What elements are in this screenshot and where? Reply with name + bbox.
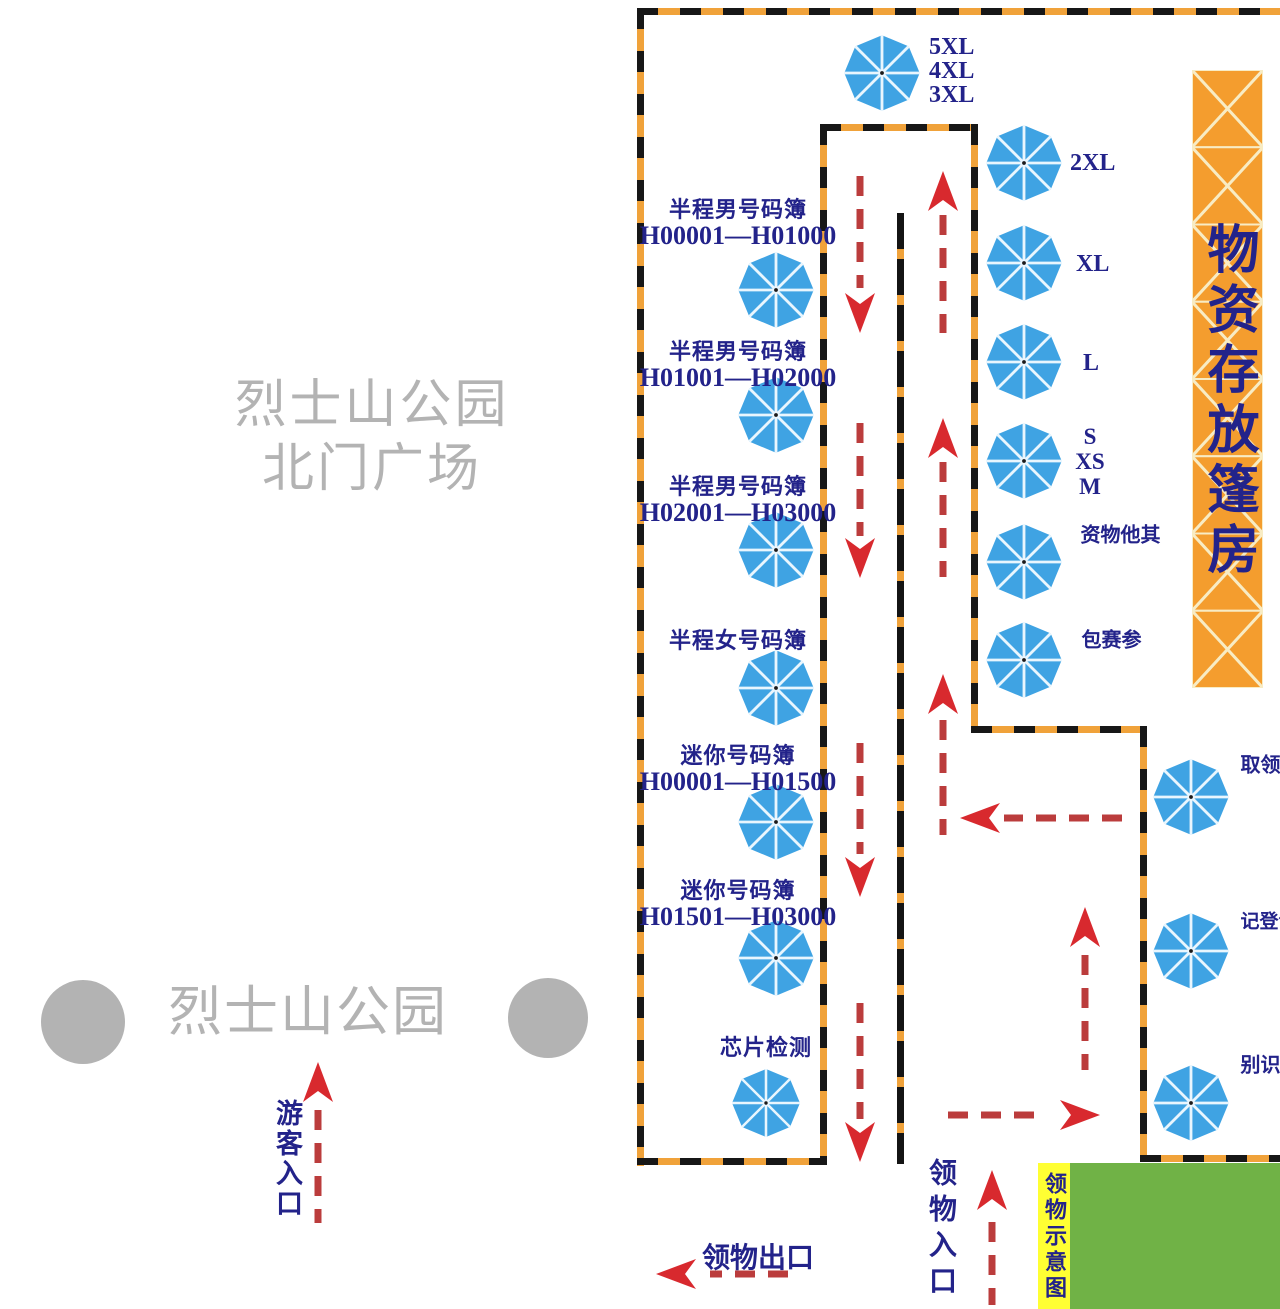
umbrella-sizes-s-xs-m-icon bbox=[984, 421, 1064, 501]
boundary-inner-top bbox=[820, 124, 978, 131]
pickup-entrance-label: 领物入口 bbox=[926, 1158, 954, 1302]
umbrella-mini-1-label: 迷你号码簿H00001—H01500 bbox=[608, 744, 868, 795]
flow-up-2 bbox=[928, 418, 958, 577]
north-gate-plaza-line2: 北门广场 bbox=[172, 438, 572, 502]
umbrella-team-pickup-icon bbox=[1151, 757, 1231, 837]
umbrella-other-supplies-label: 其他物资 bbox=[1078, 524, 1158, 544]
umbrella-half-men-3-label: 半程男号码簿H02001—H03000 bbox=[608, 475, 868, 526]
umbrella-id-check-label: 身份识别 bbox=[1238, 1054, 1280, 1077]
boundary-right-lower bbox=[1140, 726, 1147, 1162]
flow-up-1 bbox=[928, 171, 958, 333]
pickup-exit-label: 领物出口 bbox=[658, 1236, 858, 1276]
umbrella-proxy-register-label: 代领登记 bbox=[1239, 911, 1280, 930]
flow-left-team bbox=[960, 803, 1122, 833]
umbrella-size-l-icon bbox=[984, 322, 1064, 402]
umbrella-size-xl-icon bbox=[984, 223, 1064, 303]
flow-up-right bbox=[1070, 907, 1100, 1070]
flow-up-3 bbox=[928, 674, 958, 835]
umbrella-sizes-5xl-3xl-label: 5XL4XL3XL bbox=[929, 35, 974, 107]
umbrella-size-2xl-icon bbox=[984, 123, 1064, 203]
umbrella-chip-check-icon bbox=[730, 1067, 802, 1139]
boundary-outer-left bbox=[637, 8, 644, 1166]
umbrella-half-men-1-label: 半程男号码簿H00001—H01000 bbox=[608, 198, 868, 249]
umbrella-sizes-s-xs-m-label: SXSM bbox=[1060, 424, 1120, 499]
park-circle-left bbox=[41, 980, 125, 1064]
umbrella-proxy-register-icon bbox=[1151, 911, 1231, 991]
pickup-diagram-sign: 领物示意图 bbox=[1038, 1163, 1070, 1309]
umbrella-size-2xl-label: 2XL bbox=[1070, 151, 1115, 175]
umbrella-race-pack-icon bbox=[984, 620, 1064, 700]
umbrella-chip-check-label: 芯片检测 bbox=[636, 1036, 896, 1060]
pickup-area-diagram: 领物示意图 烈士山公园 北门广场 烈士山公园 游客入口 领物出口 领物入口 物资… bbox=[0, 0, 1280, 1309]
flow-down-exit bbox=[845, 1003, 875, 1162]
umbrella-sizes-5xl-3xl-icon bbox=[842, 33, 922, 113]
park-name-label: 烈士山公园 bbox=[148, 983, 468, 1041]
lawn-area bbox=[1070, 1163, 1280, 1309]
umbrella-half-men-2-label: 半程男号码簿H01001—H02000 bbox=[608, 340, 868, 391]
umbrella-mini-2-label: 迷你号码簿H01501—H03000 bbox=[608, 879, 868, 930]
umbrella-team-pickup-label: 团队领取 bbox=[1238, 754, 1280, 775]
umbrella-race-pack-label: 参赛包 bbox=[1079, 629, 1139, 651]
pickup-diagram-title: 领物示意图 bbox=[1043, 1172, 1065, 1302]
umbrella-half-men-1-icon bbox=[736, 250, 816, 330]
flow-up-entrance bbox=[977, 1170, 1007, 1305]
umbrella-half-women-icon bbox=[736, 648, 816, 728]
umbrella-size-xl-label: XL bbox=[1076, 252, 1109, 276]
boundary-bottom-right bbox=[1140, 1155, 1280, 1162]
boundary-outer-top bbox=[637, 8, 1280, 15]
park-circle-right bbox=[508, 978, 588, 1058]
flow-up-visitor bbox=[303, 1062, 333, 1223]
north-gate-plaza-line1: 烈士山公园 bbox=[172, 374, 572, 438]
umbrella-size-l-label: L bbox=[1083, 351, 1099, 375]
umbrella-other-supplies-icon bbox=[984, 522, 1064, 602]
boundary-inner-right-upper bbox=[971, 124, 978, 733]
storage-tent-banner-text: 物资存放篷房 bbox=[1201, 222, 1253, 582]
umbrella-id-check-icon bbox=[1151, 1063, 1231, 1143]
visitor-entrance-label: 游客入口 bbox=[273, 1099, 300, 1219]
flow-right-id bbox=[948, 1100, 1100, 1130]
umbrella-half-women-label: 半程女号码簿 bbox=[608, 629, 868, 653]
north-gate-plaza-label: 烈士山公园 北门广场 bbox=[172, 374, 572, 502]
boundary-outer-bottom-left bbox=[637, 1158, 825, 1165]
corridor-divider-line bbox=[897, 213, 904, 1164]
boundary-mid-horizontal bbox=[971, 726, 1147, 733]
